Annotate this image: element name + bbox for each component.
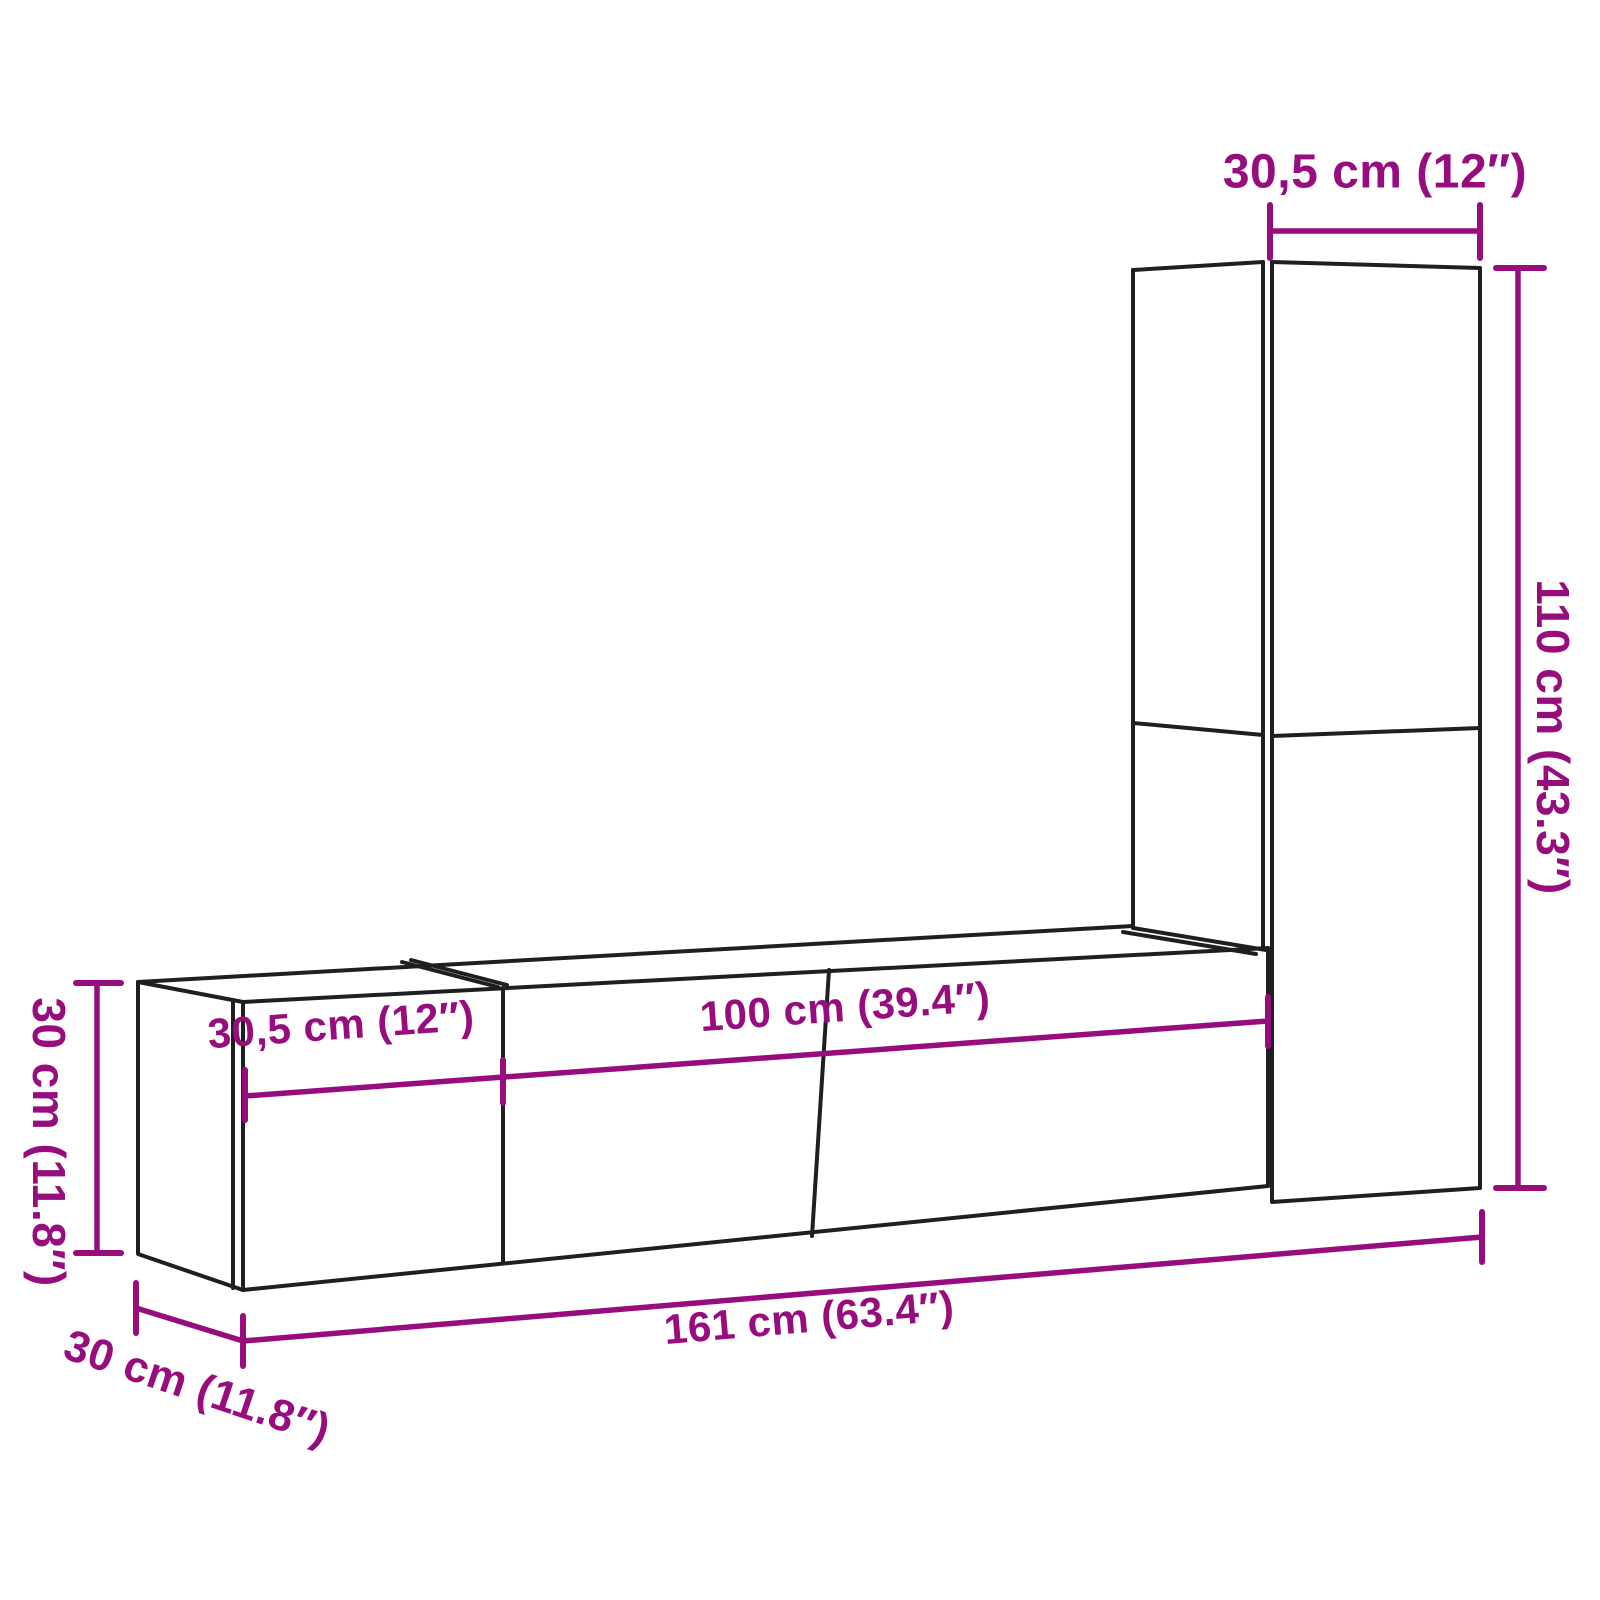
dimension-diagram: 30,5 cm (12″) 110 cm (43.3″) 30 cm (11.8… bbox=[0, 0, 1600, 1600]
cabinet-line-drawing bbox=[0, 0, 1600, 1600]
tall-cabinet-front-divider bbox=[1272, 728, 1480, 736]
top-face-junction-seam bbox=[1133, 928, 1266, 950]
tall-cabinet-side-top-edge bbox=[1133, 262, 1263, 270]
dim-left-height-line bbox=[76, 983, 121, 1253]
dim-top-width-label: 30,5 cm (12″) bbox=[1223, 145, 1527, 200]
dim-left-height-label: 30 cm (11.8″) bbox=[22, 997, 76, 1286]
dimension-lines bbox=[76, 205, 1544, 1366]
long-cabinet-bottom-edge bbox=[243, 1186, 1268, 1290]
dim-top-width-line bbox=[1270, 205, 1480, 258]
dim-right-height-label: 110 cm (43.3″) bbox=[1526, 579, 1580, 894]
tall-cabinet-outline bbox=[1133, 262, 1480, 1202]
tall-cabinet-side-divider bbox=[1133, 723, 1263, 735]
long-cabinet-outline bbox=[138, 926, 1268, 1290]
